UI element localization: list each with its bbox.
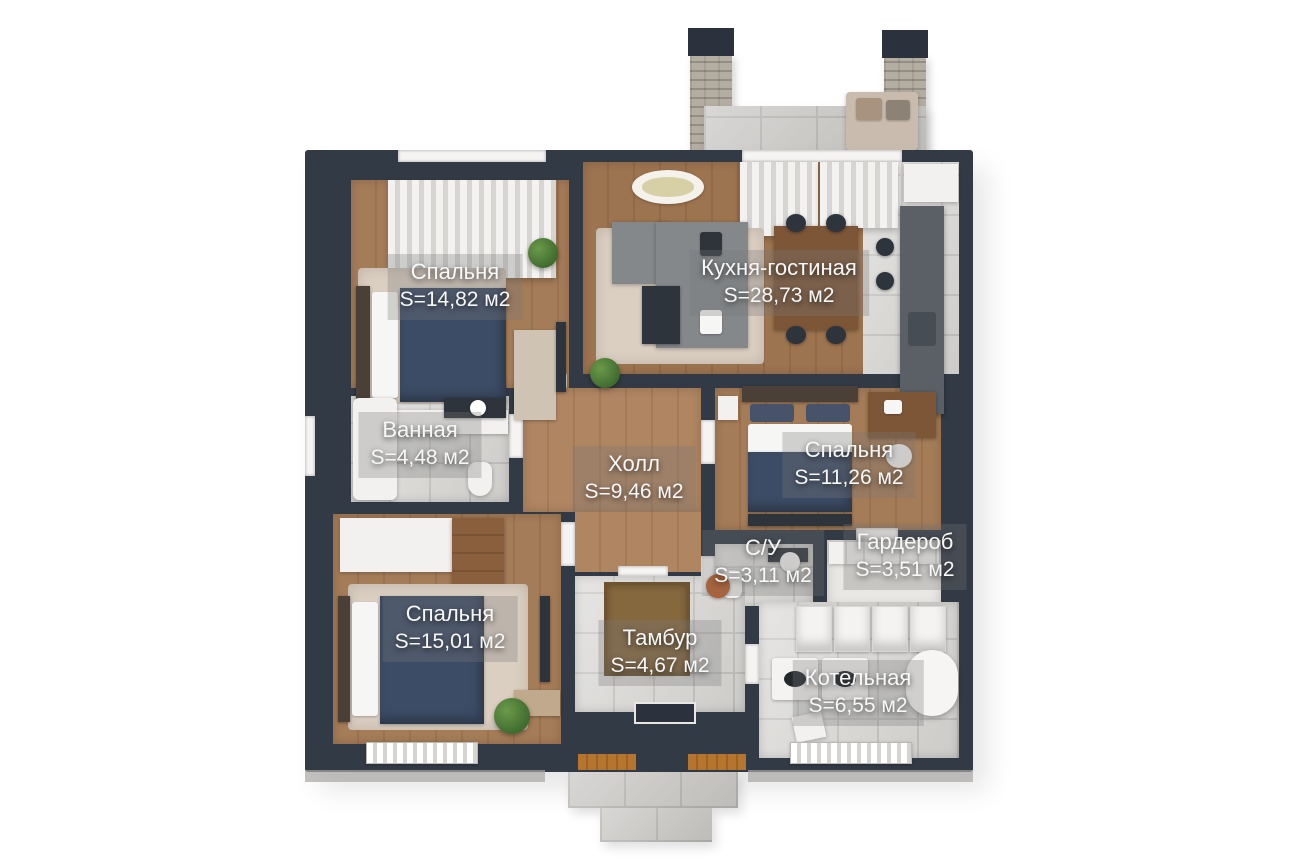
- kitchen-island: [900, 206, 944, 414]
- chimney-left-cap: [688, 28, 734, 56]
- house-plinth-right: [748, 770, 973, 782]
- storage-bin: [910, 606, 946, 652]
- dining-chair: [786, 214, 806, 232]
- room-hall-lower: [575, 512, 701, 572]
- bed-headboard: [338, 596, 350, 722]
- label-bedroom-bottom-left: СпальняS=15,01 м2: [383, 596, 518, 662]
- label-boiler: КотельнаяS=6,55 м2: [793, 660, 924, 726]
- outdoor-sofa-pillow: [886, 100, 910, 120]
- label-bedroom-top-left: СпальняS=14,82 м2: [388, 254, 523, 320]
- door-bathroom: [509, 414, 523, 458]
- chimney-right-cap: [882, 30, 928, 58]
- wardrobe-cabinet: [340, 518, 452, 572]
- radiator: [366, 742, 478, 764]
- door-hall-vestibule: [618, 566, 668, 576]
- bed-headboard: [742, 386, 858, 402]
- bench: [514, 330, 556, 420]
- deck-strip-right: [688, 754, 746, 770]
- label-bathroom: ВаннаяS=4,48 м2: [358, 412, 481, 478]
- outdoor-sofa-pillow: [856, 98, 882, 120]
- label-bedroom-right: СпальняS=11,26 м2: [782, 432, 915, 498]
- tv: [556, 322, 566, 392]
- tv: [540, 596, 550, 682]
- label-hall: ХоллS=9,46 м2: [572, 446, 695, 512]
- door-bedroom-bottom-left: [561, 522, 575, 566]
- front-door: [634, 702, 696, 724]
- label-vestibule: ТамбурS=4,67 м2: [598, 620, 721, 686]
- bar-stool: [876, 238, 894, 256]
- dining-chair: [826, 214, 846, 232]
- terrace-lower: [600, 808, 712, 842]
- bar-stool: [876, 272, 894, 290]
- coffee-table: [642, 286, 680, 344]
- dining-chair: [786, 326, 806, 344]
- house-plinth-left: [305, 770, 545, 782]
- bed-headboard: [356, 286, 370, 404]
- kitchen-sink: [908, 312, 936, 346]
- radiator: [790, 742, 912, 764]
- curtains: [740, 162, 818, 236]
- window-top-right: [742, 150, 902, 162]
- door-bedroom-right: [701, 420, 715, 464]
- storage-bin: [834, 606, 870, 652]
- dining-chair: [826, 326, 846, 344]
- door-boiler: [745, 644, 759, 684]
- nightstand: [718, 396, 738, 420]
- window-left-bathroom: [305, 416, 315, 476]
- wall-art: [632, 170, 704, 204]
- bed-pillow: [806, 404, 850, 422]
- deck-strip-left: [578, 754, 636, 770]
- label-wc: С/УS=3,11 м2: [702, 530, 824, 596]
- floor-plan-canvas: СпальняS=14,82 м2 Кухня-гостинаяS=28,73 …: [0, 0, 1296, 864]
- bed-pillows: [352, 602, 378, 716]
- window-top-left: [398, 150, 546, 162]
- label-kitchen-living: Кухня-гостинаяS=28,73 м2: [689, 250, 869, 316]
- label-wardrobe: ГардеробS=3,51 м2: [843, 524, 966, 590]
- desk-paper: [884, 400, 902, 414]
- terrace-upper: [568, 772, 738, 808]
- bed-pillow: [750, 404, 794, 422]
- storage-bin: [872, 606, 908, 652]
- plant: [494, 698, 530, 734]
- plant: [528, 238, 558, 268]
- tv-console: [748, 514, 852, 526]
- plant: [590, 358, 620, 388]
- storage-bin: [796, 606, 832, 652]
- kitchen-cabinet: [904, 164, 958, 202]
